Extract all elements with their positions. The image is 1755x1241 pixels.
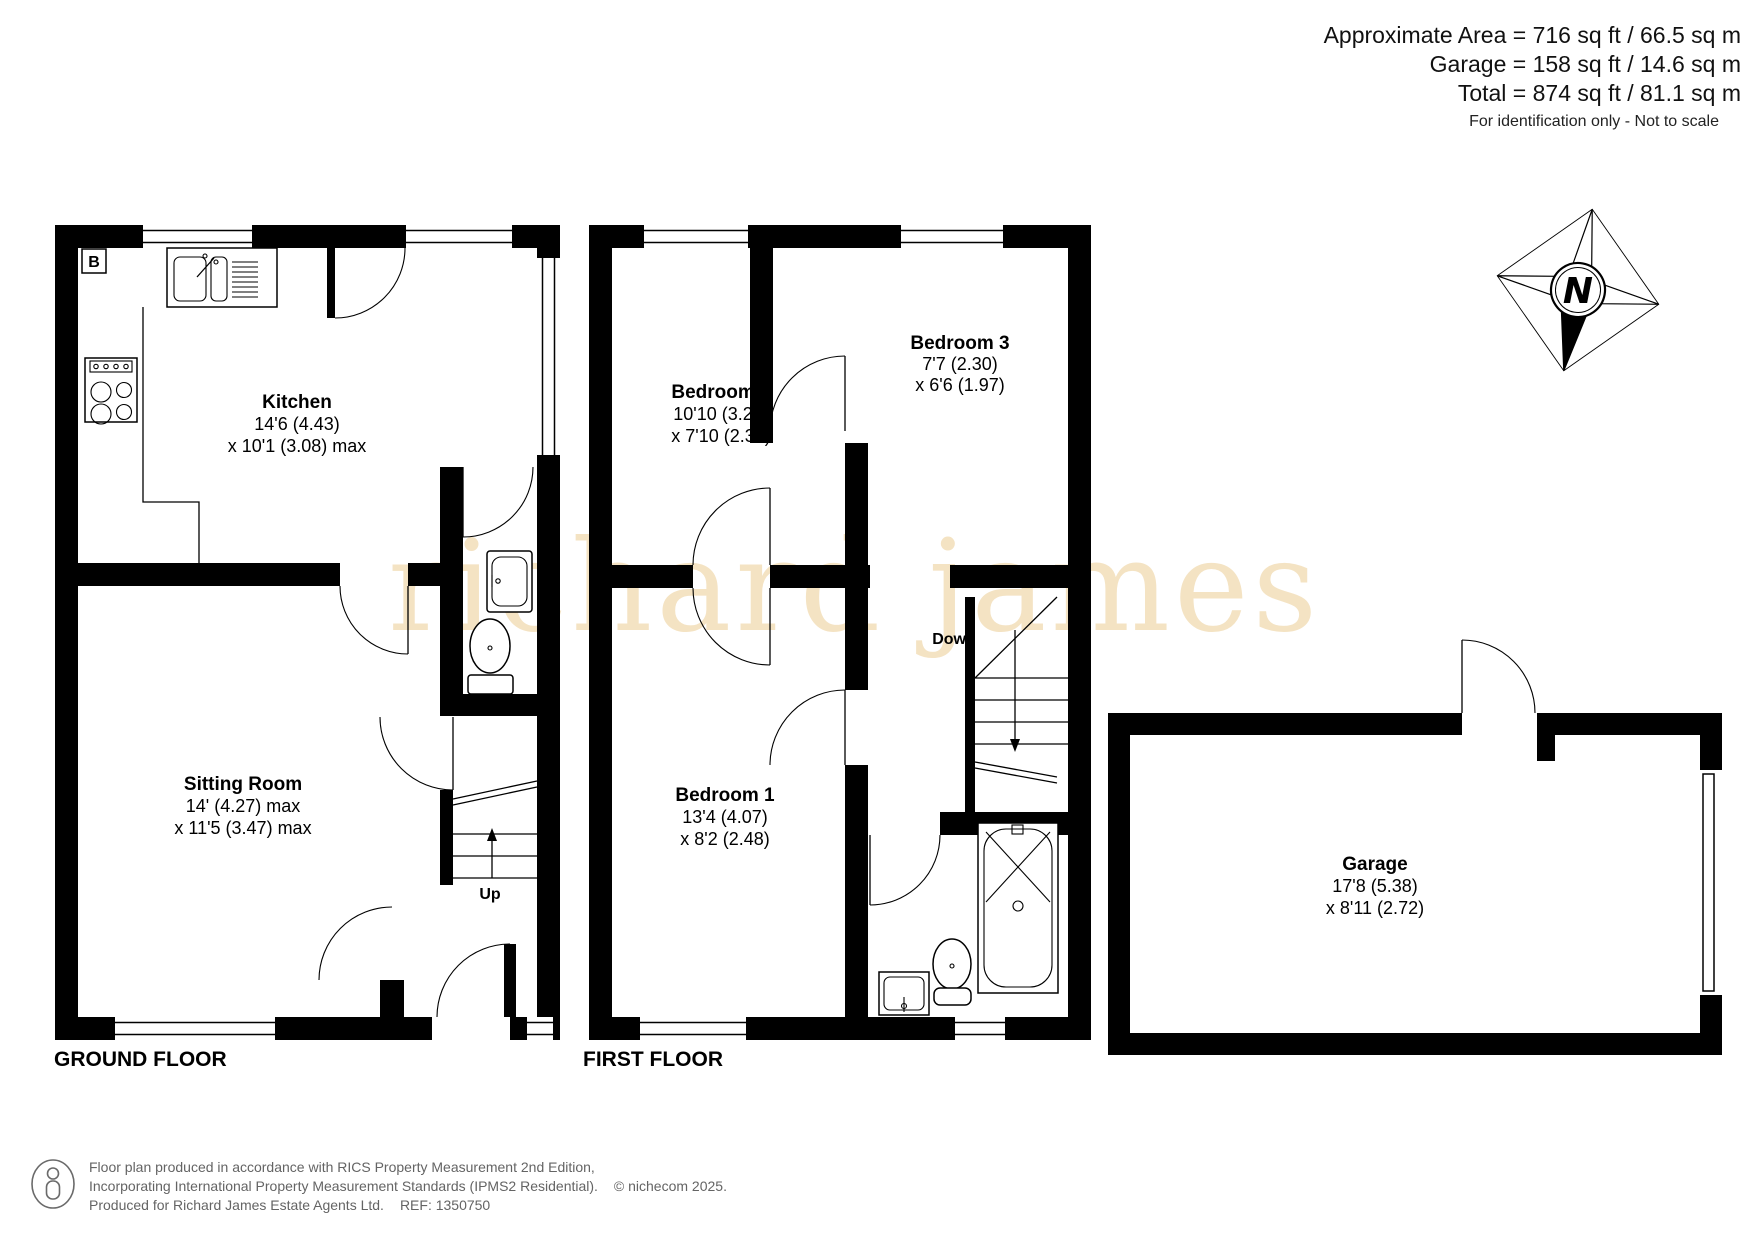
bath-icon (978, 823, 1058, 993)
window (537, 258, 560, 455)
door-arc (437, 944, 510, 1017)
interior-wall (845, 765, 868, 1017)
wc-wall (440, 467, 463, 694)
room-dim: 7'7 (2.30) (922, 354, 997, 374)
wc-wall (440, 694, 538, 716)
footer-line3: Produced for Richard James Estate Agents… (89, 1197, 384, 1213)
door-arc (319, 907, 392, 980)
compass-rose: N (1483, 195, 1673, 385)
toilet-icon (468, 619, 513, 694)
interior-wall (845, 588, 868, 690)
door-arc (870, 835, 940, 905)
window (955, 1017, 1005, 1040)
door-arc (335, 248, 405, 318)
garage-door (1700, 770, 1722, 995)
garage-plan: Garage 17'8 (5.38) x 8'11 (2.72) (1108, 640, 1722, 1055)
footer: Floor plan produced in accordance with R… (30, 1158, 727, 1215)
stairs-up-label: Up (479, 886, 501, 903)
interior-wall (78, 563, 340, 586)
door-arc (1462, 640, 1535, 713)
door-arc (770, 690, 845, 765)
approximate-area-line: Approximate Area = 716 sq ft / 66.5 sq m (1324, 21, 1741, 50)
person-logo-icon (30, 1158, 76, 1210)
window (143, 225, 252, 248)
window (406, 225, 512, 248)
interior-wall (380, 980, 404, 1017)
stair-wall (440, 790, 453, 885)
basin-icon (487, 551, 532, 612)
stairs-down-label: Down (932, 631, 976, 648)
garage-area-line: Garage = 158 sq ft / 14.6 sq m (1324, 50, 1741, 79)
room-label: Sitting Room (184, 774, 302, 795)
footer-text: Floor plan produced in accordance with R… (89, 1158, 727, 1215)
north-label: N (1563, 271, 1593, 312)
front-door-leaf (504, 944, 516, 1017)
window (640, 1017, 746, 1040)
first-floor-plan: Bedroom 2 10'10 (3.29) x 7'10 (2.38) Bed… (583, 225, 1091, 1071)
footer-line2: Incorporating International Property Mea… (89, 1178, 598, 1194)
basin-icon (879, 972, 929, 1015)
room-label: Bedroom 1 (675, 785, 775, 806)
worktop-line (143, 307, 199, 563)
door-arc (770, 356, 845, 431)
door-jamb (1537, 735, 1555, 761)
cooker-icon (85, 358, 137, 424)
room-dim: 14' (4.27) max (186, 796, 301, 816)
reference-number: REF: 1350750 (400, 1196, 490, 1215)
window (527, 1017, 553, 1040)
sink-icon (167, 248, 277, 307)
front-door-opening (432, 1017, 510, 1040)
door-arc (340, 586, 408, 654)
door-arc (463, 467, 533, 537)
room-dim: 13'4 (4.07) (682, 807, 768, 827)
room-dim: x 6'6 (1.97) (915, 375, 1004, 395)
boiler-label: B (88, 254, 100, 271)
room-dim: x 11'5 (3.47) max (174, 818, 311, 838)
door-arc (693, 488, 770, 565)
door-leaf (327, 248, 335, 318)
toilet-icon (933, 939, 971, 1005)
room-label: Bedroom 3 (910, 333, 1009, 354)
disclaimer: For identification only - Not to scale (1324, 113, 1719, 131)
area-summary: Approximate Area = 716 sq ft / 66.5 sq m… (1324, 21, 1741, 131)
footer-line1: Floor plan produced in accordance with R… (89, 1159, 595, 1175)
stairs-down (975, 597, 1068, 783)
door-arc (693, 588, 770, 665)
room-dim: 17'8 (5.38) (1332, 876, 1418, 896)
copyright: © nichecom 2025. (614, 1177, 727, 1196)
floorplan-drawing: B (0, 0, 1755, 1241)
interior-wall (612, 565, 693, 588)
door-opening (1462, 713, 1537, 735)
interior-wall (950, 565, 1068, 588)
ground-floor-plan: B (54, 225, 560, 1071)
room-label: Garage (1342, 854, 1407, 875)
window (901, 225, 1003, 248)
room-dim: x 10'1 (3.08) max (228, 436, 367, 456)
door-arc (380, 717, 453, 790)
stair-wall (965, 597, 975, 812)
room-dim: x 8'11 (2.72) (1326, 898, 1424, 918)
interior-wall (770, 565, 870, 588)
room-dim: x 8'2 (2.48) (680, 829, 769, 849)
room-label: Bedroom 2 (671, 382, 770, 403)
room-label: Kitchen (262, 392, 332, 413)
window (115, 1017, 275, 1040)
room-dim: x 7'10 (2.38) (671, 426, 771, 446)
stairs-up (453, 781, 537, 878)
room-dim: 14'6 (4.43) (254, 414, 340, 434)
window (644, 225, 748, 248)
interior-wall (845, 443, 868, 573)
total-area-line: Total = 874 sq ft / 81.1 sq m (1324, 79, 1741, 108)
ground-floor-title: GROUND FLOOR (54, 1048, 227, 1071)
first-floor-title: FIRST FLOOR (583, 1048, 723, 1071)
room-dim: 10'10 (3.29) (673, 404, 769, 424)
